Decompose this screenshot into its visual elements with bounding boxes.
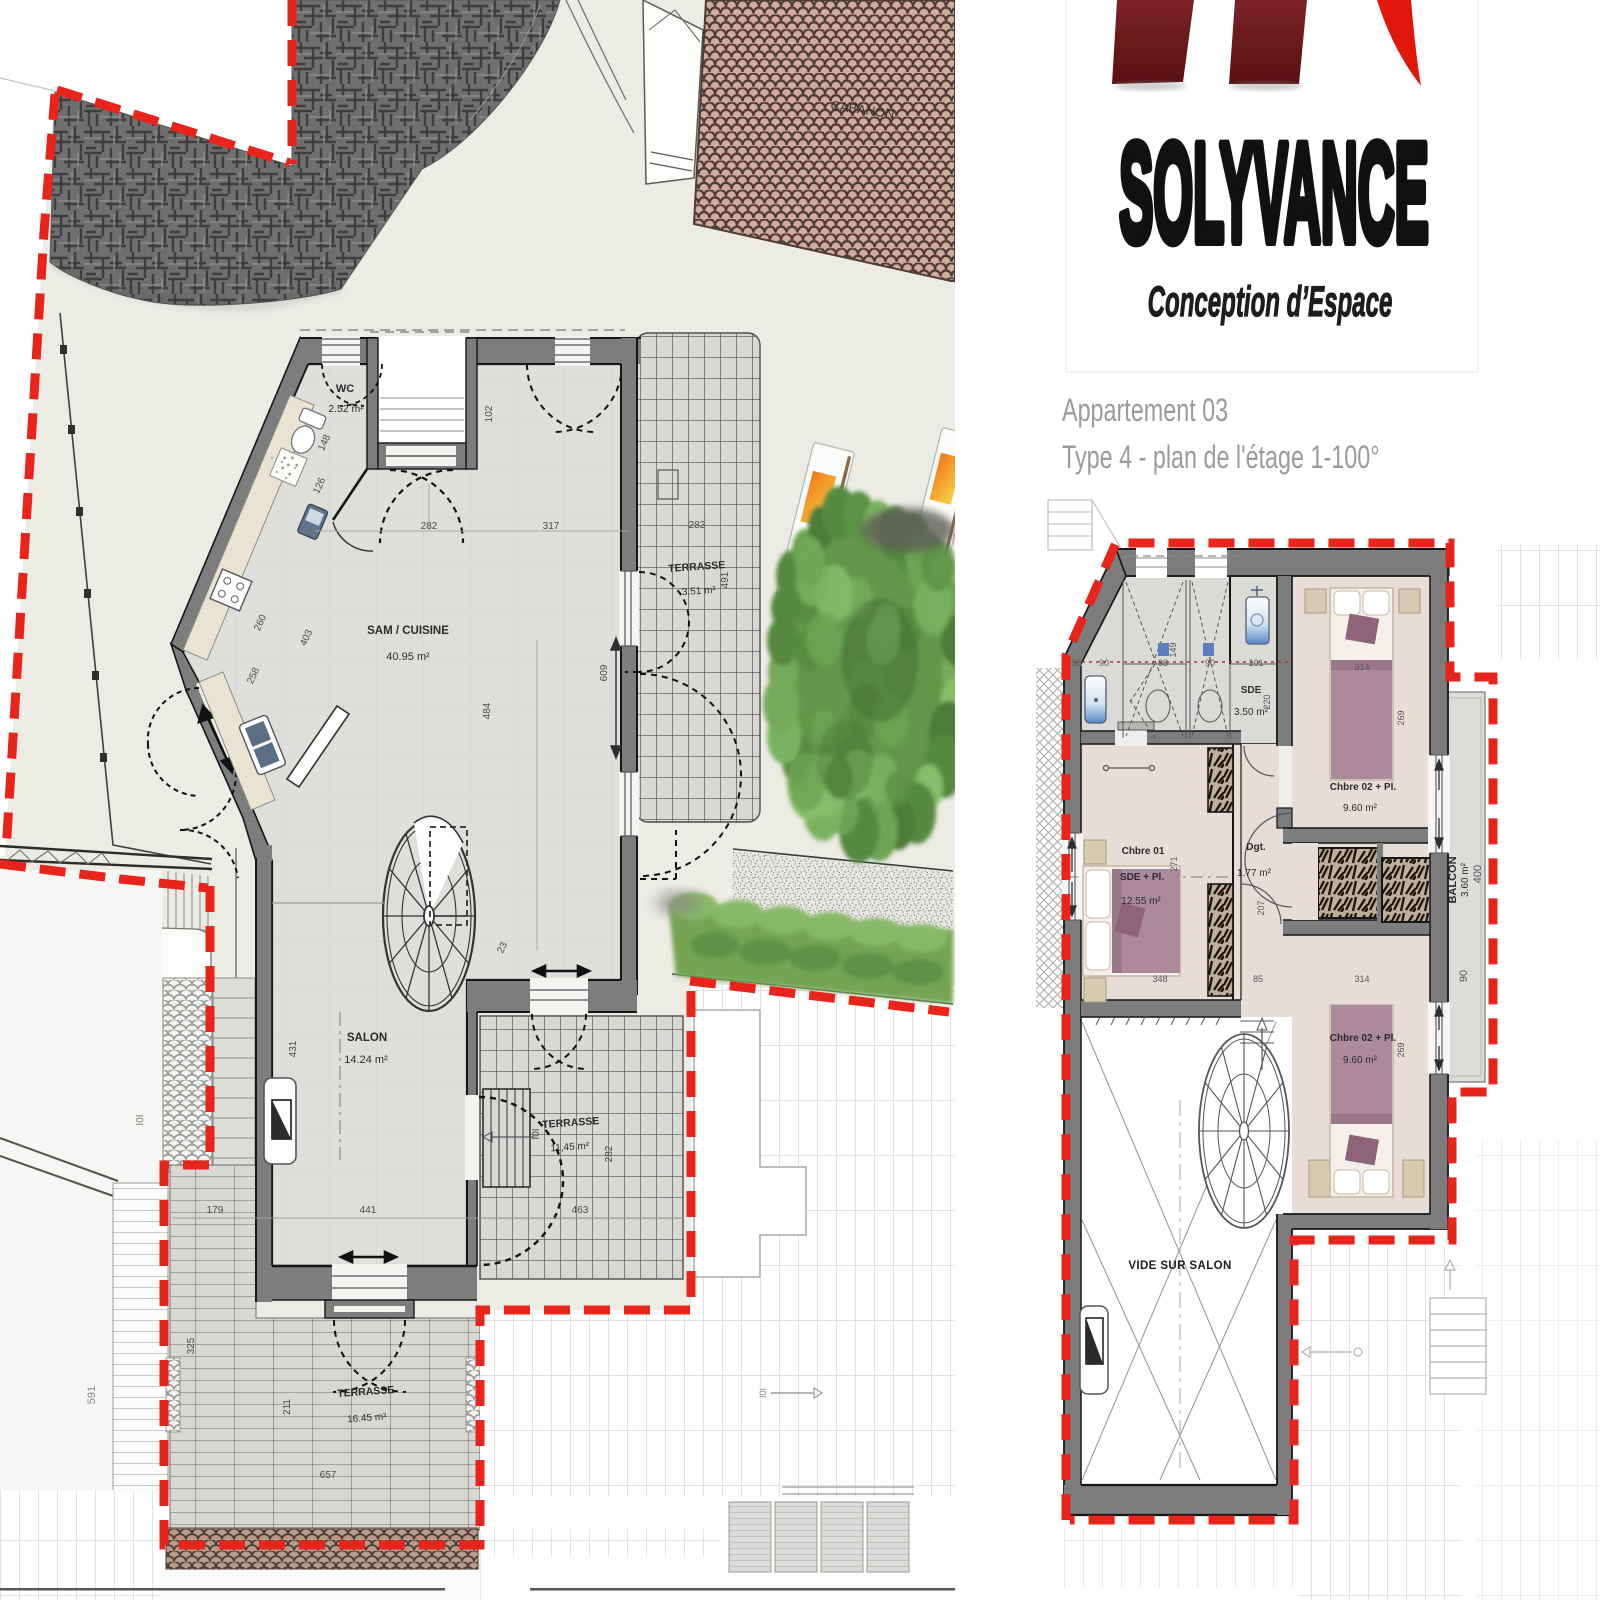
svg-text:SDE + Pl.: SDE + Pl.	[1120, 872, 1164, 883]
svg-text:Chbre 01: Chbre 01	[1122, 846, 1165, 857]
svg-text:3.60 m²: 3.60 m²	[1460, 862, 1471, 897]
svg-text:90: 90	[1458, 970, 1470, 982]
svg-text:220: 220	[1262, 694, 1272, 709]
svg-text:Appartement 03: Appartement 03	[1062, 392, 1228, 427]
svg-text:657: 657	[320, 1470, 337, 1481]
svg-text:98: 98	[1158, 658, 1168, 668]
svg-text:282: 282	[689, 520, 706, 531]
svg-text:90: 90	[1099, 658, 1109, 668]
svg-text:314: 314	[1354, 662, 1369, 672]
svg-text:101: 101	[1248, 658, 1263, 668]
svg-text:609: 609	[599, 664, 610, 681]
svg-text:282: 282	[421, 521, 438, 532]
svg-text:SALON: SALON	[347, 1032, 387, 1044]
svg-text:SDE: SDE	[1241, 685, 1262, 696]
svg-text:1.77 m²: 1.77 m²	[1237, 868, 1272, 879]
svg-text:317: 317	[543, 521, 560, 532]
svg-text:40.95 m²: 40.95 m²	[386, 651, 430, 663]
svg-text:Type 4 - plan de l'étage 1-100: Type 4 - plan de l'étage 1-100°	[1062, 439, 1380, 474]
svg-text:BALCON: BALCON	[1447, 856, 1459, 903]
svg-text:431: 431	[288, 1040, 299, 1057]
svg-text:14.24 m²: 14.24 m²	[344, 1054, 388, 1066]
svg-text:207: 207	[1256, 900, 1266, 915]
svg-text:325: 325	[186, 1337, 197, 1354]
svg-text:85: 85	[1253, 974, 1263, 984]
svg-text:269: 269	[1396, 710, 1406, 725]
svg-text:463: 463	[572, 1205, 589, 1216]
svg-text:484: 484	[482, 702, 493, 719]
svg-text:I0I: I0I	[531, 1128, 542, 1139]
svg-text:Dgt.: Dgt.	[1246, 842, 1266, 853]
svg-text:400: 400	[1472, 865, 1484, 883]
svg-text:I0I: I0I	[135, 1114, 146, 1125]
svg-text:282: 282	[604, 1145, 615, 1162]
svg-text:149: 149	[1168, 642, 1178, 657]
svg-text:348: 348	[1152, 974, 1167, 984]
svg-text:271: 271	[1169, 856, 1179, 871]
svg-text:211: 211	[282, 1399, 293, 1415]
svg-text:591: 591	[86, 1386, 98, 1404]
svg-text:441: 441	[360, 1205, 377, 1216]
svg-text:Chbre 02 + Pl.: Chbre 02 + Pl.	[1330, 782, 1397, 793]
svg-text:314: 314	[1354, 974, 1369, 984]
svg-text:9.60 m²: 9.60 m²	[1343, 803, 1378, 814]
svg-text:2.52 m²: 2.52 m²	[328, 403, 364, 415]
svg-text:WC: WC	[336, 383, 354, 395]
svg-text:SAM / CUISINE: SAM / CUISINE	[367, 625, 449, 637]
svg-text:I0I: I0I	[758, 1388, 768, 1398]
svg-text:SOLYVANCE: SOLYVANCE	[1119, 116, 1429, 271]
svg-text:VIDE SUR SALON: VIDE SUR SALON	[1128, 1260, 1231, 1272]
svg-text:Chbre 02 + Pl.: Chbre 02 + Pl.	[1330, 1033, 1397, 1044]
svg-text:55: 55	[1072, 658, 1082, 668]
svg-text:179: 179	[207, 1205, 224, 1216]
svg-text:Conception d’Espace: Conception d’Espace	[1148, 278, 1393, 326]
svg-text:102: 102	[484, 405, 495, 422]
svg-text:12.55 m²: 12.55 m²	[1121, 896, 1161, 907]
svg-text:90: 90	[1205, 658, 1215, 668]
svg-text:9.60 m²: 9.60 m²	[1343, 1055, 1378, 1066]
svg-text:491: 491	[720, 571, 731, 588]
svg-text:269: 269	[1396, 1042, 1406, 1057]
